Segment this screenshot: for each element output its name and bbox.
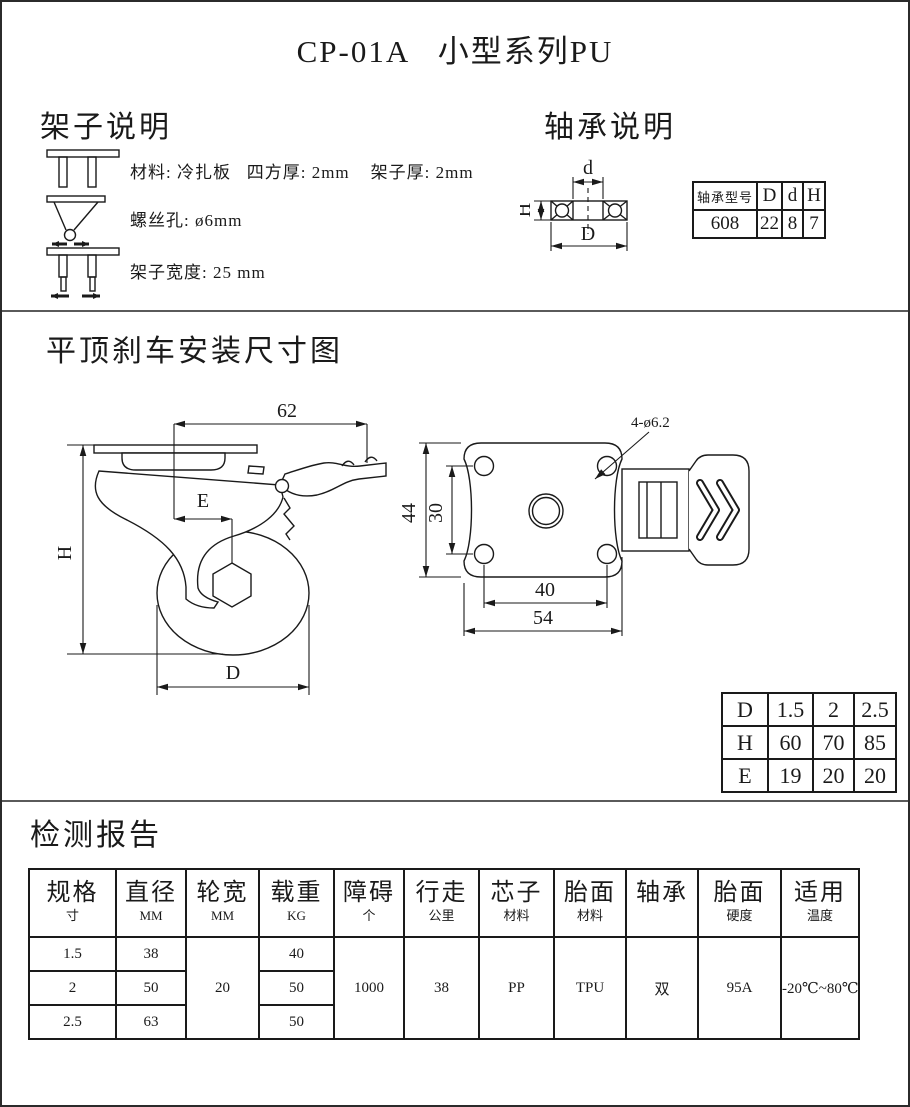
wheel-width-value: 20 (186, 937, 259, 1039)
bearing-model-header: 轴承型号 (693, 182, 757, 210)
col-tread-material: 胎面 材料 (554, 869, 626, 937)
bearing-d-small-value: 8 (782, 210, 803, 238)
frame-section-heading: 架子说明 (40, 102, 172, 146)
dims-h-2: 70 (813, 726, 854, 759)
load-1: 40 (259, 937, 334, 971)
diameter-1: 38 (116, 937, 186, 971)
caster-side-view-drawing: 62 E H D (37, 395, 399, 735)
dims-e-1: 19 (768, 759, 813, 792)
bracket-long-icon (46, 246, 124, 302)
report-heading: 检测报告 (30, 810, 162, 854)
spec-row-1: 1.5 38 20 40 1000 38 PP TPU 双 95A -20℃~8… (29, 937, 859, 971)
temperature-value: -20℃~80℃ (781, 937, 859, 1039)
bearing-col-d-small: d (782, 182, 803, 210)
bearing-model-value: 608 (693, 210, 757, 238)
col-temperature: 适用 温度 (781, 869, 859, 937)
diameter-2: 50 (116, 971, 186, 1005)
bearing-section-heading: 轴承说明 (544, 102, 676, 146)
top-dim-54-label: 54 (533, 607, 553, 629)
dims-table: D 1.5 2 2.5 H 60 70 85 E 19 20 20 (721, 692, 897, 793)
spec-sheet-page: CP-01A 小型系列PU 架子说明 材料: 冷扎板 四方厚: 2mm 架子厚:… (0, 0, 910, 1107)
bearing-dim-d-label: d (583, 157, 593, 179)
dims-h-header: H (722, 726, 768, 759)
side-dim-d-label: D (226, 662, 240, 684)
col-wheel-width: 轮宽 MM (186, 869, 259, 937)
plate-top-view-drawing: 4-ø6.2 44 30 40 54 (399, 385, 781, 677)
obstacles-value: 1000 (334, 937, 404, 1039)
distance-value: 38 (404, 937, 479, 1039)
report-table: 规格 寸 直径 MM 轮宽 MM 载重 KG 障碍 个 行走 公里 芯子 材料 (28, 868, 860, 1040)
dims-e-header: E (722, 759, 768, 792)
load-2: 50 (259, 971, 334, 1005)
col-distance: 行走 公里 (404, 869, 479, 937)
col-bearing: 轴承 (626, 869, 698, 937)
frame-material-text: 材料: 冷扎板 四方厚: 2mm 架子厚: 2mm (130, 158, 474, 183)
col-core: 芯子 材料 (479, 869, 554, 937)
bearing-type-value: 双 (626, 937, 698, 1039)
frame-width-text: 架子宽度: 25 mm (130, 258, 266, 283)
col-hardness: 胎面 硬度 (698, 869, 781, 937)
dims-e-3: 20 (854, 759, 896, 792)
bearing-col-h: H (803, 182, 825, 210)
diameter-3: 63 (116, 1005, 186, 1039)
top-dim-30-label: 30 (425, 503, 447, 523)
size-2: 2 (29, 971, 116, 1005)
size-1: 1.5 (29, 937, 116, 971)
frame-screwhole-text: 螺丝孔: ø6mm (130, 206, 242, 231)
bearing-dim-h-label: H (520, 203, 535, 217)
bracket-short-icon (46, 148, 124, 192)
col-diameter: 直径 MM (116, 869, 186, 937)
side-dim-62-label: 62 (277, 400, 297, 422)
dims-d-header: D (722, 693, 768, 726)
top-hole-note-label: 4-ø6.2 (631, 415, 670, 431)
report-header-row: 规格 寸 直径 MM 轮宽 MM 载重 KG 障碍 个 行走 公里 芯子 材料 (29, 869, 859, 937)
bearing-d-big-value: 22 (757, 210, 782, 238)
dims-d-1: 1.5 (768, 693, 813, 726)
bearing-table: 轴承型号 D d H 608 22 8 7 (692, 181, 826, 239)
page-title: CP-01A 小型系列PU (2, 26, 908, 71)
load-3: 50 (259, 1005, 334, 1039)
bearing-diagram: d H D (520, 152, 712, 294)
screw-funnel-icon (46, 194, 110, 254)
tread-material-value: TPU (554, 937, 626, 1039)
bearing-dim-dbig-label: D (581, 223, 595, 245)
col-load: 载重 KG (259, 869, 334, 937)
dims-d-2: 2 (813, 693, 854, 726)
drawing-section-heading: 平顶刹车安装尺寸图 (46, 326, 343, 370)
section-divider-top (2, 310, 908, 312)
top-dim-40-label: 40 (535, 579, 555, 601)
bearing-col-d-big: D (757, 182, 782, 210)
side-dim-e-label: E (197, 490, 209, 512)
size-3: 2.5 (29, 1005, 116, 1039)
dims-d-3: 2.5 (854, 693, 896, 726)
col-obstacles: 障碍 个 (334, 869, 404, 937)
dims-h-1: 60 (768, 726, 813, 759)
section-divider-bottom (2, 800, 908, 802)
top-dim-44-label: 44 (399, 503, 420, 523)
dims-e-2: 20 (813, 759, 854, 792)
bearing-h-value: 7 (803, 210, 825, 238)
dims-h-3: 85 (854, 726, 896, 759)
col-spec: 规格 寸 (29, 869, 116, 937)
side-dim-h-label: H (54, 546, 76, 560)
core-material-value: PP (479, 937, 554, 1039)
hardness-value: 95A (698, 937, 781, 1039)
